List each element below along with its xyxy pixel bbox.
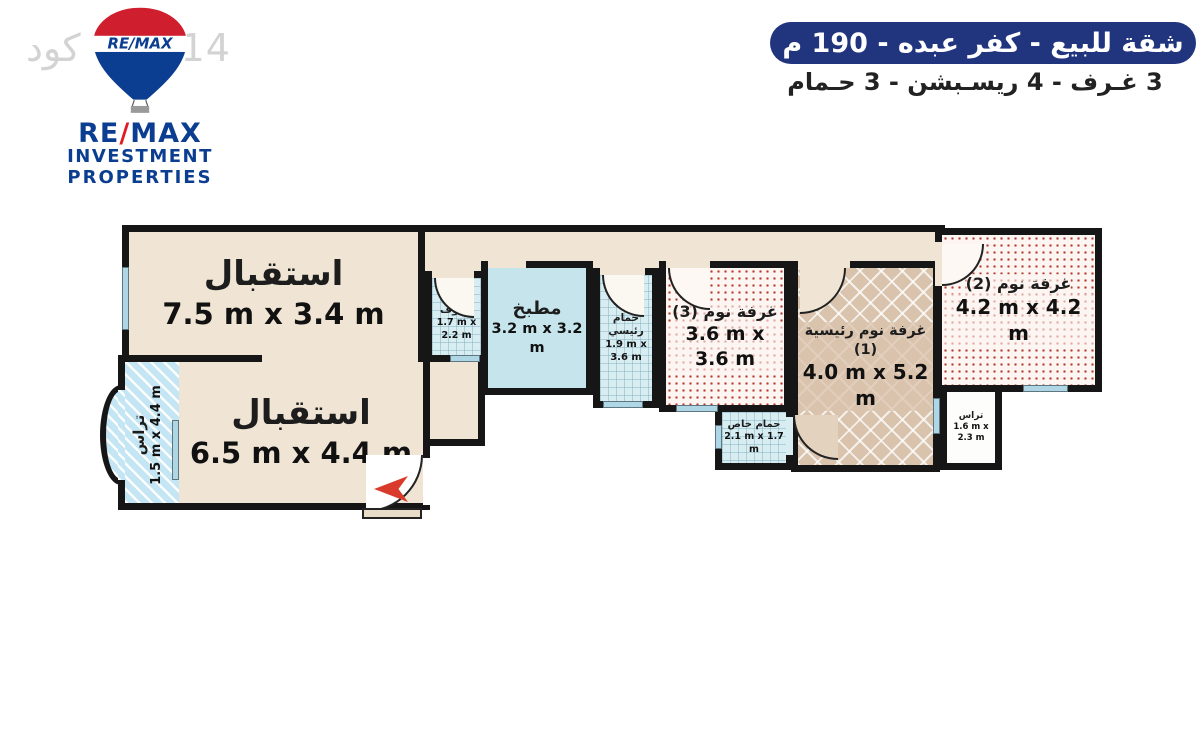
opening-bedroom3-door	[666, 261, 710, 268]
opening-kitchen-door	[488, 261, 526, 268]
room-dims: 1.6 m x 2.3 m	[947, 422, 995, 444]
room-dims: 7.5 m x 3.4 m	[162, 296, 384, 334]
room-name: استقبال	[231, 392, 371, 435]
entrance-hall-floor	[425, 355, 485, 446]
room-name: تراس	[959, 411, 983, 422]
logo-slash: /	[119, 118, 130, 149]
room-terrace-right: تراس 1.6 m x 2.3 m	[940, 385, 1002, 470]
opening-bedroom2-door	[935, 242, 942, 286]
room-name: تراس	[130, 415, 149, 456]
room-private-bathroom: حمام خاص 2.1 m x 1.7 m	[715, 405, 793, 470]
remax-logo: RE/MAX RE/MAX INVESTMENT PROPERTIES	[50, 6, 230, 188]
room-dims: 3.2 m x 3.2 m	[488, 320, 586, 358]
room-name: مطبخ	[513, 298, 562, 321]
room-dims: 1.9 m x 3.6 m	[600, 338, 652, 364]
opening-reception1-reception2	[262, 355, 418, 362]
room-name: غرفة نوم (2)	[966, 274, 1072, 294]
window-guest-bathroom	[450, 355, 480, 362]
listing-title-banner: شقة للبيع - كفر عبده - 190 م	[770, 22, 1196, 64]
entrance-hall-wall	[478, 362, 485, 446]
room-dims: 2.1 m x 1.7 m	[722, 431, 786, 456]
opening-entrance	[423, 458, 430, 505]
window-master-bathroom	[603, 401, 643, 408]
opening-private-bathroom-door	[786, 417, 793, 455]
opening-master-bedroom-door	[798, 261, 850, 268]
logo-wordmark: RE/MAX	[50, 120, 230, 147]
logo-line-investment: INVESTMENT	[50, 147, 230, 168]
room-dims: 1.7 m x 2.2 m	[432, 317, 481, 342]
balloon-band-text: RE/MAX	[107, 35, 174, 53]
window-reception2-terrace	[172, 420, 179, 480]
balloon-basket	[131, 106, 149, 113]
room-kitchen: مطبخ 3.2 m x 3.2 m	[481, 261, 593, 395]
room-name: غرفة نوم رئيسية (1)	[798, 322, 933, 358]
window-reception1	[122, 267, 129, 330]
window-master-bedroom-terrace	[933, 398, 940, 434]
window-private-bathroom	[715, 425, 722, 449]
entrance-hall-wall	[425, 439, 485, 446]
window-bedroom3	[676, 405, 718, 412]
room-name: استقبال	[204, 253, 344, 296]
room-dims: 1.5 m x 4.4 m	[149, 385, 166, 485]
logo-max: MAX	[130, 118, 202, 149]
room-name: غرفة نوم (3)	[672, 302, 778, 322]
logo-line-properties: PROPERTIES	[50, 168, 230, 189]
room-dims: 4.2 m x 4.2 m	[942, 294, 1095, 346]
room-dims: 3.6 m x 3.6 m	[666, 322, 784, 371]
window-bedroom2	[1023, 385, 1068, 392]
entrance-door-leaf	[362, 508, 422, 519]
room-dims: 4.0 m x 5.2 m	[798, 359, 933, 411]
room-name: حمام خاص	[728, 419, 781, 432]
opening-guest-bathroom-door	[432, 271, 474, 278]
room-reception-1: استقبال 7.5 m x 3.4 m	[122, 225, 425, 362]
logo-re: RE	[78, 118, 119, 149]
listing-subtitle: 3 غـرف - 4 ريسـبشن - 3 حـمام	[760, 68, 1190, 96]
opening-master-bathroom-door	[600, 268, 645, 275]
remax-balloon-icon: RE/MAX	[82, 6, 198, 114]
room-name: حمام رئيسي	[600, 312, 652, 338]
corridor-top-wall	[420, 225, 945, 232]
